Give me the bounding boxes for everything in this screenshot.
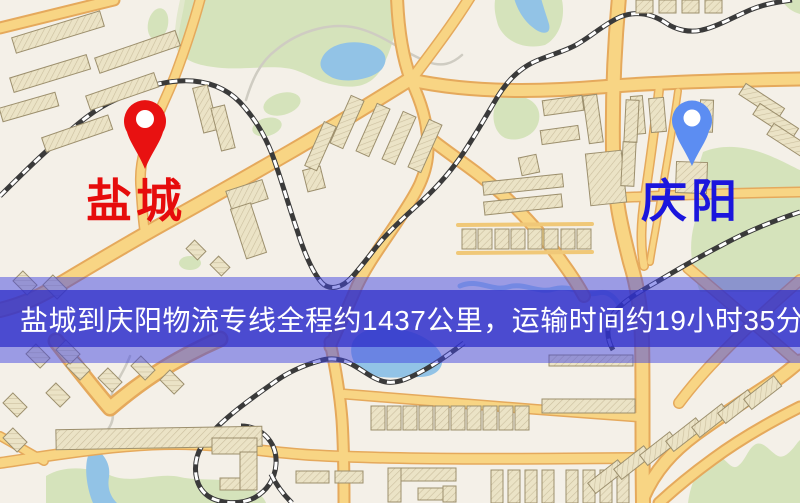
city-label-qingyang: 庆阳 (641, 178, 741, 224)
map-canvas[interactable]: 盐城 庆阳 盐城到庆阳物流专线全程约1437公里，运输时间约19小时35分钟. (0, 0, 800, 503)
city-label-yancheng: 盐城 (86, 178, 186, 224)
pin-hole (136, 110, 154, 128)
marker-pin-yancheng[interactable] (124, 100, 166, 169)
pin-hole (684, 110, 701, 127)
map-base (0, 0, 800, 503)
info-banner: 盐城到庆阳物流专线全程约1437公里，运输时间约19小时35分钟. (0, 290, 800, 347)
info-banner-text: 盐城到庆阳物流专线全程约1437公里，运输时间约19小时35分钟. (0, 299, 800, 339)
